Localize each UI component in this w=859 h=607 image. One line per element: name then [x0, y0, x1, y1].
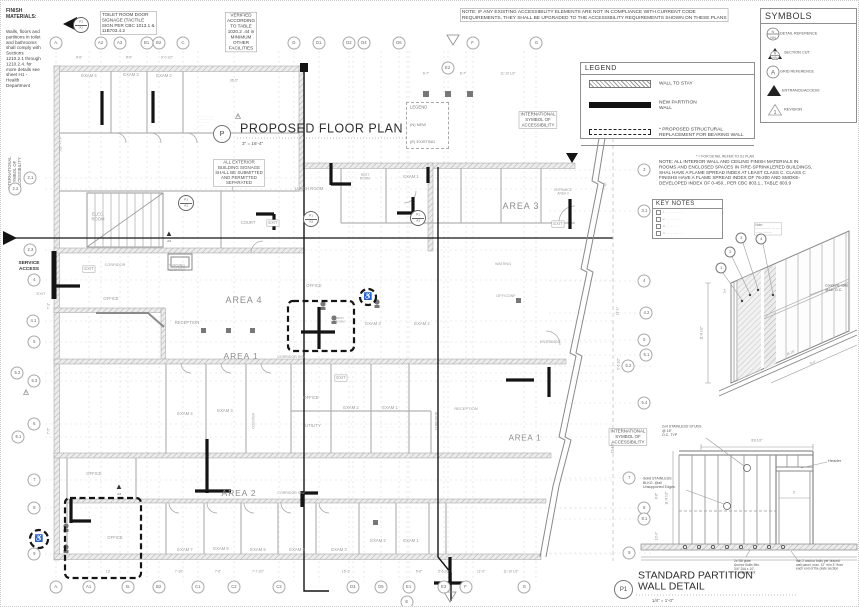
svg-text:NN: NN: [773, 56, 778, 60]
symbols-row-label: GRID REFERENCE: [780, 69, 814, 73]
plan-title-bubble: P: [213, 125, 231, 143]
grid-reference-icon: A: [766, 65, 780, 79]
mini-legend-box: LEGEND (N) NEW (E) EXISTING: [406, 102, 449, 149]
mini-legend-item: (N) NEW: [410, 123, 424, 127]
svg-text:NN: NN: [770, 35, 776, 40]
legend-row-label: * PROPOSED STRUCTURAL REPLACEMENT FOR BE…: [659, 127, 744, 138]
architectural-sheet: FINISH MATERIALS:Walls, floors and parti…: [0, 0, 859, 607]
legend-row-label: NEW PARTITION WALL: [659, 100, 697, 111]
symbols-row-label: SECTION CUT: [784, 50, 810, 54]
symbols-row: ENTRANCE/ACCESS: [761, 81, 856, 100]
key-notes-box: KEY NOTES 1 ·· ········ ······ ···2 ····…: [652, 199, 723, 239]
key-note-item: 3 ······· ···· ··: [653, 223, 722, 230]
symbols-row: NNN SECTION CUT: [761, 43, 856, 62]
svg-text:N: N: [772, 29, 775, 34]
legend-row: NEW PARTITION WALL: [581, 91, 754, 118]
key-notes-title: KEY NOTES: [653, 200, 722, 209]
revision-icon: 1: [766, 103, 784, 116]
section-cut-icon: NNN: [766, 46, 784, 60]
wall-to-stay-swatch: [589, 80, 651, 88]
symbols-row-label: ENTRANCE/ACCESS: [782, 88, 820, 92]
reception-counter: [96, 313, 164, 327]
symbols-box: SYMBOLS NNN DETAIL REFERENCE NNN SECTION…: [760, 8, 857, 123]
section-triangle-icon: [447, 35, 459, 45]
legend-footnote: * = FOR DETAIL REFER TO S1 PLAN: [581, 145, 754, 164]
section-triangle-icon: [444, 592, 456, 602]
match-flag-icon: [63, 17, 77, 31]
legend-row: WALL TO STAY: [581, 75, 754, 91]
legend-box: LEGEND WALL TO STAY NEW PARTITION WALL *…: [580, 62, 755, 139]
stairs: [87, 193, 163, 247]
nursing-counter: [168, 254, 192, 270]
svg-text:A: A: [771, 69, 776, 76]
legend-row-label: WALL TO STAY: [659, 81, 693, 86]
entrance-arrow-icon: [566, 153, 578, 163]
key-note-item: 4 ········ ······ · ···: [653, 230, 722, 237]
mini-legend-title: LEGEND: [410, 105, 425, 110]
symbols-row-label: DETAIL REFERENCE: [780, 31, 817, 35]
detail-title-bubble: P1: [614, 580, 633, 599]
entrance-access-icon: [766, 84, 782, 97]
legend-row: * PROPOSED STRUCTURAL REPLACEMENT FOR BE…: [581, 118, 754, 145]
plumbing-fixtures: [63, 91, 521, 553]
section-arrow-icon: [3, 231, 17, 245]
proposed-structural-swatch: [589, 129, 651, 135]
key-note-item: 1 ·· ········ ······ ···: [653, 209, 722, 216]
svg-text:1: 1: [773, 110, 776, 116]
symbols-row: NNN DETAIL REFERENCE: [761, 24, 856, 43]
legend-title: LEGEND: [581, 63, 754, 75]
symbols-row-label: REVISION: [784, 107, 802, 111]
new-partition-swatch: [589, 102, 651, 108]
wall-axon-detail: [705, 231, 857, 396]
key-note-item: 2 ···· ······· ·····: [653, 216, 722, 223]
diagonal-east-wall: [540, 101, 611, 557]
symbols-row: A GRID REFERENCE: [761, 62, 856, 81]
symbols-row: 1 REVISION: [761, 100, 856, 119]
symbols-title: SYMBOLS: [761, 9, 856, 24]
mini-legend-item: (E) EXISTING: [410, 140, 424, 144]
detail-reference-icon: NNN: [766, 27, 780, 41]
